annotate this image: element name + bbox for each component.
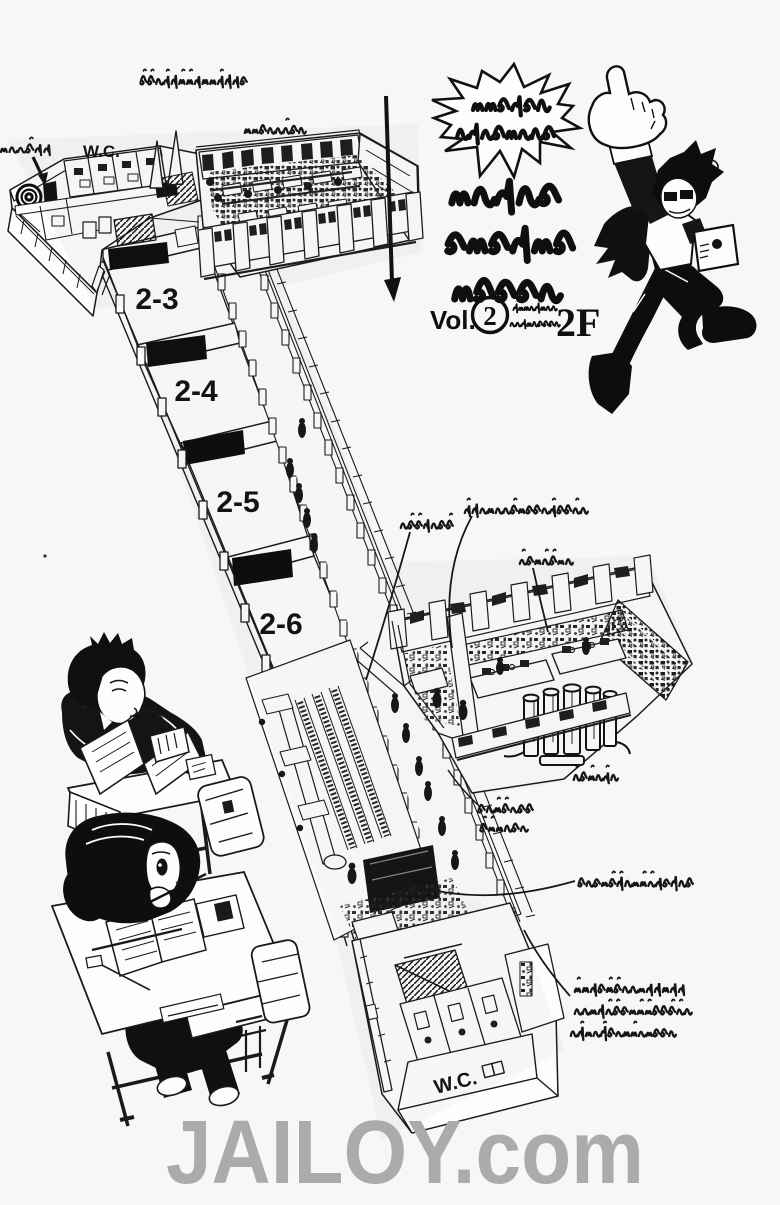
svg-text:JAILOY.com: JAILOY.com — [166, 1103, 644, 1203]
svg-text:Vol.: Vol. — [430, 305, 476, 335]
svg-text:2: 2 — [483, 301, 497, 331]
svg-text:2F: 2F — [556, 300, 600, 345]
